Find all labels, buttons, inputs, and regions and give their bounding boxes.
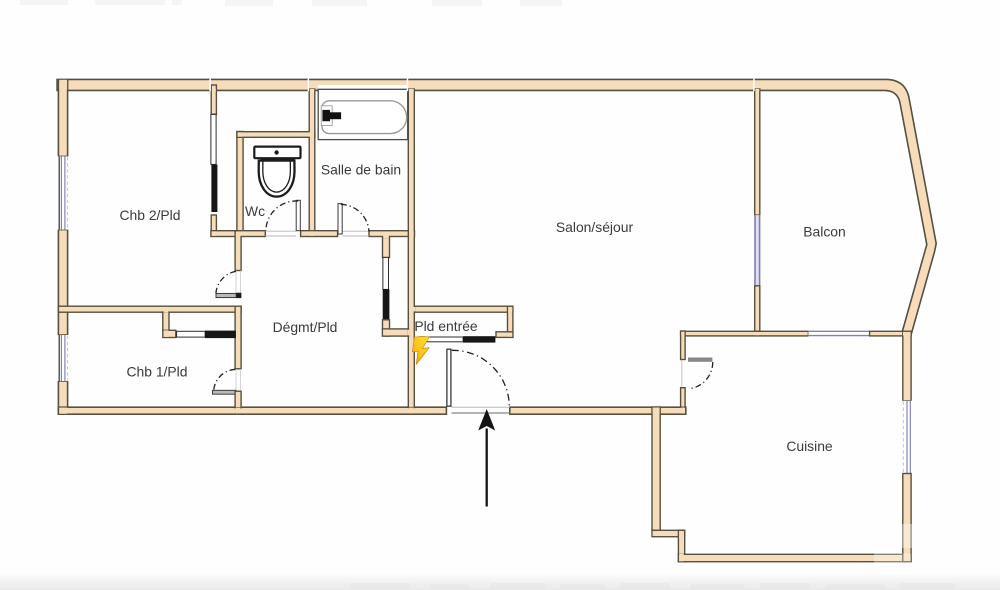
svg-text:Pld entrée: Pld entrée xyxy=(414,318,478,334)
svg-text:Balcon: Balcon xyxy=(803,224,845,240)
svg-text:Dégmt/Pld: Dégmt/Pld xyxy=(273,319,338,335)
svg-text:Chb 1/Pld: Chb 1/Pld xyxy=(126,364,187,380)
svg-text:Cuisine: Cuisine xyxy=(786,438,833,454)
svg-text:Salon/séjour: Salon/séjour xyxy=(556,219,634,235)
svg-text:Chb 2/Pld: Chb 2/Pld xyxy=(119,207,180,223)
svg-text:Wc: Wc xyxy=(245,203,265,219)
svg-text:Salle de bain: Salle de bain xyxy=(321,162,401,178)
